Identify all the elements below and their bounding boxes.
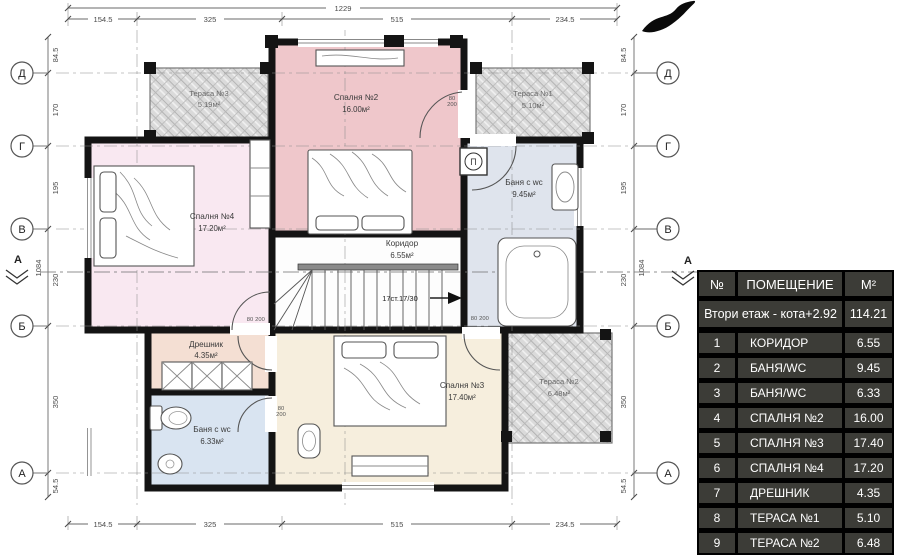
row-room: ДРЕШНИК [738,483,842,503]
row-num: 5 [699,433,735,453]
row-num: 2 [699,358,735,378]
svg-text:17.20м²: 17.20м² [198,224,226,233]
armchair-bedroom-3 [298,424,320,458]
bed-bedroom-2 [308,150,412,234]
legend-table-header: № ПОМЕЩЕНИЕ М² [699,272,892,296]
bed-bedroom-3 [334,336,446,426]
row-area: 4.35 [845,483,892,503]
section-marker-label: А [14,254,22,266]
dim-right-total: 1084 [637,260,646,277]
row-area: 5.10 [845,508,892,528]
toilet [150,406,191,430]
legend-summary-row: Втори етаж - кота+2.92 114.21 [699,301,892,327]
grid-label: В [664,224,671,236]
svg-text:17.40м²: 17.40м² [448,393,476,402]
bathtub [498,238,576,326]
row-room: СПАЛНЯ №4 [738,458,842,478]
dim-left-seg: 350 [51,396,60,409]
row-num: 8 [699,508,735,528]
row-area: 17.20 [845,458,892,478]
room-corridor [272,234,464,330]
svg-text:80: 80 [471,316,477,322]
table-row: 2 БАНЯ/WC 9.45 [699,358,892,378]
summary-label: Втори етаж - кота+2.92 [699,301,842,327]
terrace-2-floor [507,333,612,443]
stairs-label: 17ст.17/30 [382,294,418,303]
dim-right-seg: 350 [619,396,628,409]
svg-text:Спалня №4: Спалня №4 [190,212,235,221]
row-room: БАНЯ/WC [738,383,842,403]
svg-text:Тераса №3: Тераса №3 [189,89,228,98]
table-row: 5 СПАЛНЯ №3 17.40 [699,433,892,453]
dim-left-seg: 84.5 [51,48,60,63]
wardrobe-boxes [162,362,252,390]
svg-text:80: 80 [247,317,253,323]
bed-bedroom-4 [94,166,194,266]
door-size-label: 80 200 [471,316,489,322]
table-row: 4 СПАЛНЯ №2 16.00 [699,408,892,428]
row-room: СПАЛНЯ №3 [738,433,842,453]
dim-top-total: 1229 [335,4,352,13]
section-marker-label: А [684,255,692,267]
svg-text:6.48м²: 6.48м² [548,389,571,398]
dim-top-seg: 154.5 [93,15,112,24]
dim-top-seg: 234.5 [555,15,574,24]
svg-text:Баня с wc: Баня с wc [505,178,543,187]
table-row: 3 БАНЯ/WC 6.33 [699,383,892,403]
right-dimension-lines: 84.5 170 195 230 350 54.5 1084 [619,34,646,500]
svg-text:4.35м²: 4.35м² [194,351,218,360]
row-room: БАНЯ/WC [738,358,842,378]
dim-left-seg: 230 [51,274,60,287]
row-area: 6.48 [845,533,892,553]
row-num: 9 [699,533,735,553]
dresser-bedroom-2 [316,50,404,66]
row-area: 16.00 [845,408,892,428]
dim-right-seg: 170 [619,104,628,117]
svg-text:16.00м²: 16.00м² [342,105,370,114]
row-area: 6.33 [845,383,892,403]
dim-bottom-seg: 234.5 [555,520,574,529]
wardrobe-bedroom-4 [250,140,270,228]
row-num: 7 [699,483,735,503]
dim-top-seg: 515 [391,15,404,24]
grid-label: Б [664,321,671,333]
dim-top-seg: 325 [204,15,217,24]
section-arrow-icon [672,271,694,285]
svg-text:Тераса №1: Тераса №1 [513,89,552,98]
table-row: 6 СПАЛНЯ №4 17.20 [699,458,892,478]
row-area: 6.55 [845,333,892,353]
svg-text:9.45м²: 9.45м² [512,190,536,199]
svg-text:200: 200 [276,412,286,418]
grid-label: А [18,468,26,480]
left-dimension-lines: 84.5 170 195 230 350 54.5 1084 [34,34,60,500]
row-area: 17.40 [845,433,892,453]
grid-label: Б [18,321,25,333]
grid-label: А [664,468,672,480]
grid-label: Г [19,141,25,153]
col-header-area: М² [845,272,892,296]
sink-bath-bottom [158,454,182,474]
dim-left-total: 1084 [34,260,43,277]
legend-table: № ПОМЕЩЕНИЕ М² Втори етаж - кота+2.92 11… [697,270,894,555]
col-header-room: ПОМЕЩЕНИЕ [738,272,842,296]
dim-right-seg: 84.5 [619,48,628,63]
svg-text:200: 200 [255,317,265,323]
row-room: ТЕРАСА №2 [738,533,842,553]
row-room: ТЕРАСА №1 [738,508,842,528]
svg-text:200: 200 [479,316,489,322]
svg-text:Баня с wc: Баня с wc [193,425,231,434]
svg-text:Тераса №2: Тераса №2 [539,377,578,386]
svg-text:200: 200 [447,102,457,108]
grid-label: В [18,224,25,236]
boiler-marker: П [460,148,487,175]
svg-text:5.19м²: 5.19м² [198,100,221,109]
section-arrow-icon [6,270,28,284]
summary-area: 114.21 [845,301,892,327]
grid-label: Д [18,68,26,80]
dim-right-seg: 195 [619,182,628,195]
svg-text:6.55м²: 6.55м² [390,251,414,260]
dim-left-seg: 170 [51,104,60,117]
door-size-label: 80 200 [247,317,265,323]
grid-label: Г [665,141,671,153]
grid-label: Д [664,68,672,80]
dim-right-seg: 230 [619,274,628,287]
svg-text:Спалня №2: Спалня №2 [334,93,379,102]
svg-text:Спалня №3: Спалня №3 [440,381,485,390]
row-num: 6 [699,458,735,478]
table-row: 7 ДРЕШНИК 4.35 [699,483,892,503]
dim-bottom-seg: 325 [204,520,217,529]
dim-right-seg: 54.5 [619,479,628,494]
boiler-label: П [470,157,476,167]
sink-bath-top [552,164,578,210]
row-num: 3 [699,383,735,403]
svg-text:6.33м²: 6.33м² [200,437,224,446]
bottom-dimension-lines: 154.5 325 515 234.5 [65,516,620,530]
table-row: 8 ТЕРАСА №1 5.10 [699,508,892,528]
row-room: КОРИДОР [738,333,842,353]
col-header-num: № [699,272,735,296]
svg-text:Коридор: Коридор [386,239,419,248]
bench-bedroom-3 [352,456,428,476]
top-dimension-lines: 1229 154.5 325 515 234.5 [65,3,620,26]
table-row: 9 ТЕРАСА №2 6.48 [699,533,892,553]
logo-swoosh [642,1,695,32]
svg-text:Дрешник: Дрешник [189,340,223,349]
svg-text:5.10м²: 5.10м² [522,101,545,110]
row-num: 4 [699,408,735,428]
row-num: 1 [699,333,735,353]
dim-bottom-seg: 515 [391,520,404,529]
table-row: 1 КОРИДОР 6.55 [699,333,892,353]
dim-left-seg: 54.5 [51,479,60,494]
row-area: 9.45 [845,358,892,378]
row-room: СПАЛНЯ №2 [738,408,842,428]
dim-left-seg: 195 [51,182,60,195]
dim-bottom-seg: 154.5 [93,520,112,529]
